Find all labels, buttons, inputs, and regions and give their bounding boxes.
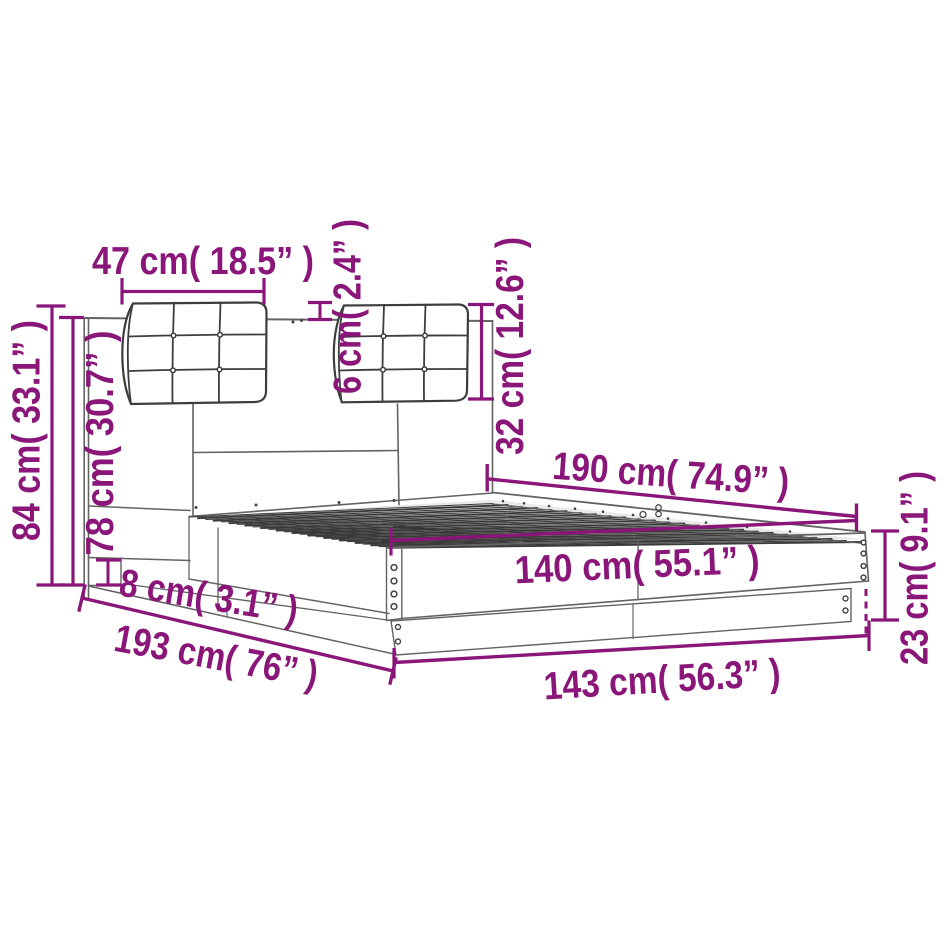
svg-text:32 cm( 12.6” ): 32 cm( 12.6” ) [489, 237, 532, 455]
svg-text:84 cm( 33.1” ): 84 cm( 33.1” ) [6, 320, 49, 541]
svg-text:47 cm( 18.5” ): 47 cm( 18.5” ) [92, 240, 314, 283]
svg-text:78 cm( 30.7” ): 78 cm( 30.7” ) [79, 331, 122, 556]
svg-text:6 cm( 2.4” ): 6 cm( 2.4” ) [327, 219, 370, 394]
svg-text:23 cm( 9.1” ): 23 cm( 9.1” ) [894, 471, 937, 665]
